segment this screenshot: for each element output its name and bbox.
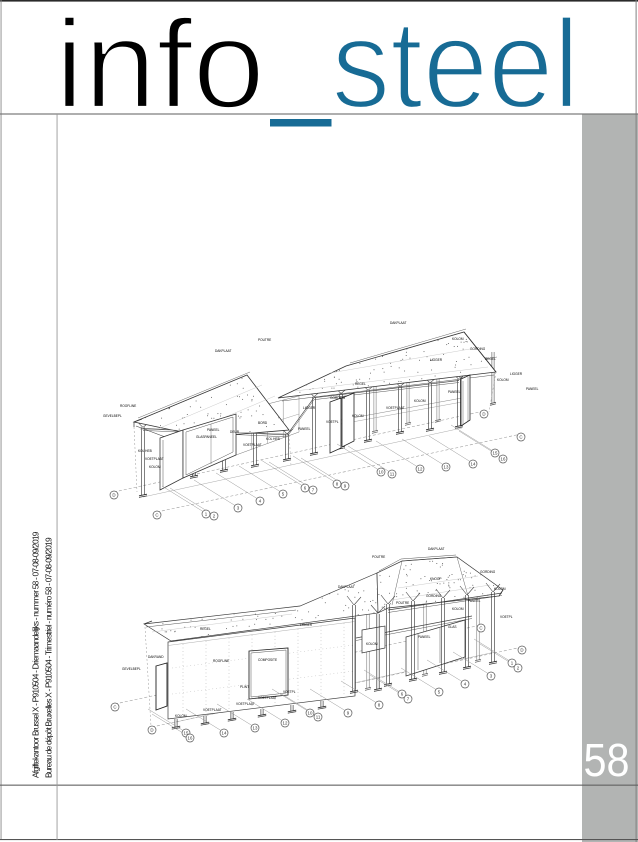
svg-text:POUTRE: POUTRE	[396, 601, 409, 605]
svg-text:D: D	[150, 728, 153, 733]
svg-text:KOLOM: KOLOM	[149, 465, 161, 469]
svg-text:C: C	[479, 626, 482, 631]
svg-text:GLAS: GLAS	[448, 625, 457, 629]
svg-text:PANEEL: PANEEL	[298, 427, 311, 431]
svg-text:LIGGER: LIGGER	[303, 406, 316, 410]
svg-text:C: C	[155, 513, 158, 518]
svg-text:KOLOM: KOLOM	[452, 607, 464, 611]
svg-text:REGEL: REGEL	[200, 627, 211, 631]
svg-text:PANEEL: PANEEL	[468, 599, 481, 603]
svg-text:D: D	[112, 493, 115, 498]
svg-text:DAKRAND: DAKRAND	[148, 655, 164, 659]
svg-text:ROOFLINE: ROOFLINE	[120, 404, 136, 408]
svg-text:C: C	[519, 435, 522, 440]
svg-text:C: C	[113, 705, 116, 710]
svg-text:GORDING: GORDING	[426, 594, 442, 598]
svg-text:VOETPLAAT: VOETPLAAT	[258, 696, 277, 700]
svg-text:VOETPL: VOETPL	[283, 690, 296, 694]
svg-text:KOLOM: KOLOM	[175, 714, 187, 718]
svg-text:16: 16	[188, 736, 193, 741]
svg-text:REGEL: REGEL	[485, 357, 496, 361]
svg-text:10: 10	[308, 711, 313, 716]
svg-text:PANEEL: PANEEL	[448, 390, 461, 394]
svg-text:PANEEL: PANEEL	[418, 635, 431, 639]
svg-text:D: D	[482, 412, 485, 417]
svg-text:COMPOSITE: COMPOSITE	[258, 658, 277, 662]
svg-text:LIGGER: LIGGER	[430, 358, 443, 362]
svg-text:steel: steel	[332, 0, 580, 135]
svg-text:VOETPLAAT: VOETPLAAT	[203, 708, 222, 712]
svg-text:LIGGER: LIGGER	[300, 623, 313, 627]
svg-text:GEVELBEPL: GEVELBEPL	[103, 414, 122, 418]
svg-text:KNOOP: KNOOP	[430, 577, 442, 581]
svg-text:DAKPLAAT: DAKPLAAT	[338, 585, 354, 589]
svg-text:12: 12	[418, 467, 423, 472]
svg-text:GORDING: GORDING	[470, 347, 486, 351]
svg-text:KOLOM: KOLOM	[452, 337, 464, 341]
svg-text:ROOFLINE: ROOFLINE	[213, 659, 229, 663]
svg-text:DAKPLAAT: DAKPLAAT	[428, 547, 444, 551]
svg-text:13: 13	[444, 465, 449, 470]
svg-text:POUTRE: POUTRE	[372, 555, 385, 559]
svg-text:D: D	[520, 648, 523, 653]
svg-text:KOL HEB: KOL HEB	[138, 449, 152, 453]
svg-text:DAKPLAAT: DAKPLAAT	[215, 349, 231, 353]
svg-text:DAKPLAAT: DAKPLAAT	[390, 321, 406, 325]
svg-text:10: 10	[379, 470, 384, 475]
svg-text:DEUR: DEUR	[230, 430, 240, 434]
svg-text:VOETPL: VOETPL	[326, 420, 339, 424]
svg-text:KOL HEB: KOL HEB	[266, 437, 280, 441]
svg-text:14: 14	[222, 731, 227, 736]
svg-text:BORD: BORD	[258, 421, 268, 425]
svg-text:11: 11	[390, 472, 395, 477]
svg-text:REGEL: REGEL	[355, 382, 366, 386]
svg-text:GLASPANEEL: GLASPANEEL	[196, 435, 217, 439]
svg-text:KOLOM: KOLOM	[414, 399, 426, 403]
svg-text:info: info	[55, 0, 265, 135]
svg-text:Bureau de dépôt Bruxelles X -: Bureau de dépôt Bruxelles X - P910504 - …	[44, 537, 54, 778]
svg-text:KOLOM: KOLOM	[494, 587, 506, 591]
svg-text:PANEEL: PANEEL	[207, 428, 220, 432]
svg-text:14: 14	[471, 462, 476, 467]
svg-text:POUTRE: POUTRE	[258, 338, 271, 342]
svg-text:Afgiftekantoor Brussel X - P91: Afgiftekantoor Brussel X - P910504 - Dri…	[31, 531, 41, 778]
svg-text:58: 58	[584, 734, 630, 786]
svg-text:KOLOM: KOLOM	[352, 414, 364, 418]
svg-text:GORDING: GORDING	[480, 570, 496, 574]
svg-text:VOETPLAAT: VOETPLAAT	[236, 702, 255, 706]
svg-text:PLINT: PLINT	[240, 685, 249, 689]
svg-text:VOETPLAAT: VOETPLAAT	[386, 406, 405, 410]
svg-text:16: 16	[501, 457, 506, 462]
svg-text:VOETPLAAT: VOETPLAAT	[145, 457, 164, 461]
svg-text:PANEEL: PANEEL	[526, 387, 539, 391]
svg-text:GORDING: GORDING	[330, 396, 346, 400]
svg-text:15: 15	[493, 451, 498, 456]
svg-text:GEVELBEPL: GEVELBEPL	[122, 667, 141, 671]
svg-text:11: 11	[316, 715, 321, 720]
svg-text:LIGGER: LIGGER	[510, 372, 523, 376]
svg-text:KOLOM: KOLOM	[497, 378, 509, 382]
svg-text:12: 12	[283, 721, 288, 726]
svg-text:13: 13	[253, 726, 258, 731]
svg-text:VOETPLAAT: VOETPLAAT	[243, 443, 262, 447]
svg-text:VOETPL: VOETPL	[500, 615, 513, 619]
svg-text:KOLOM: KOLOM	[366, 642, 378, 646]
